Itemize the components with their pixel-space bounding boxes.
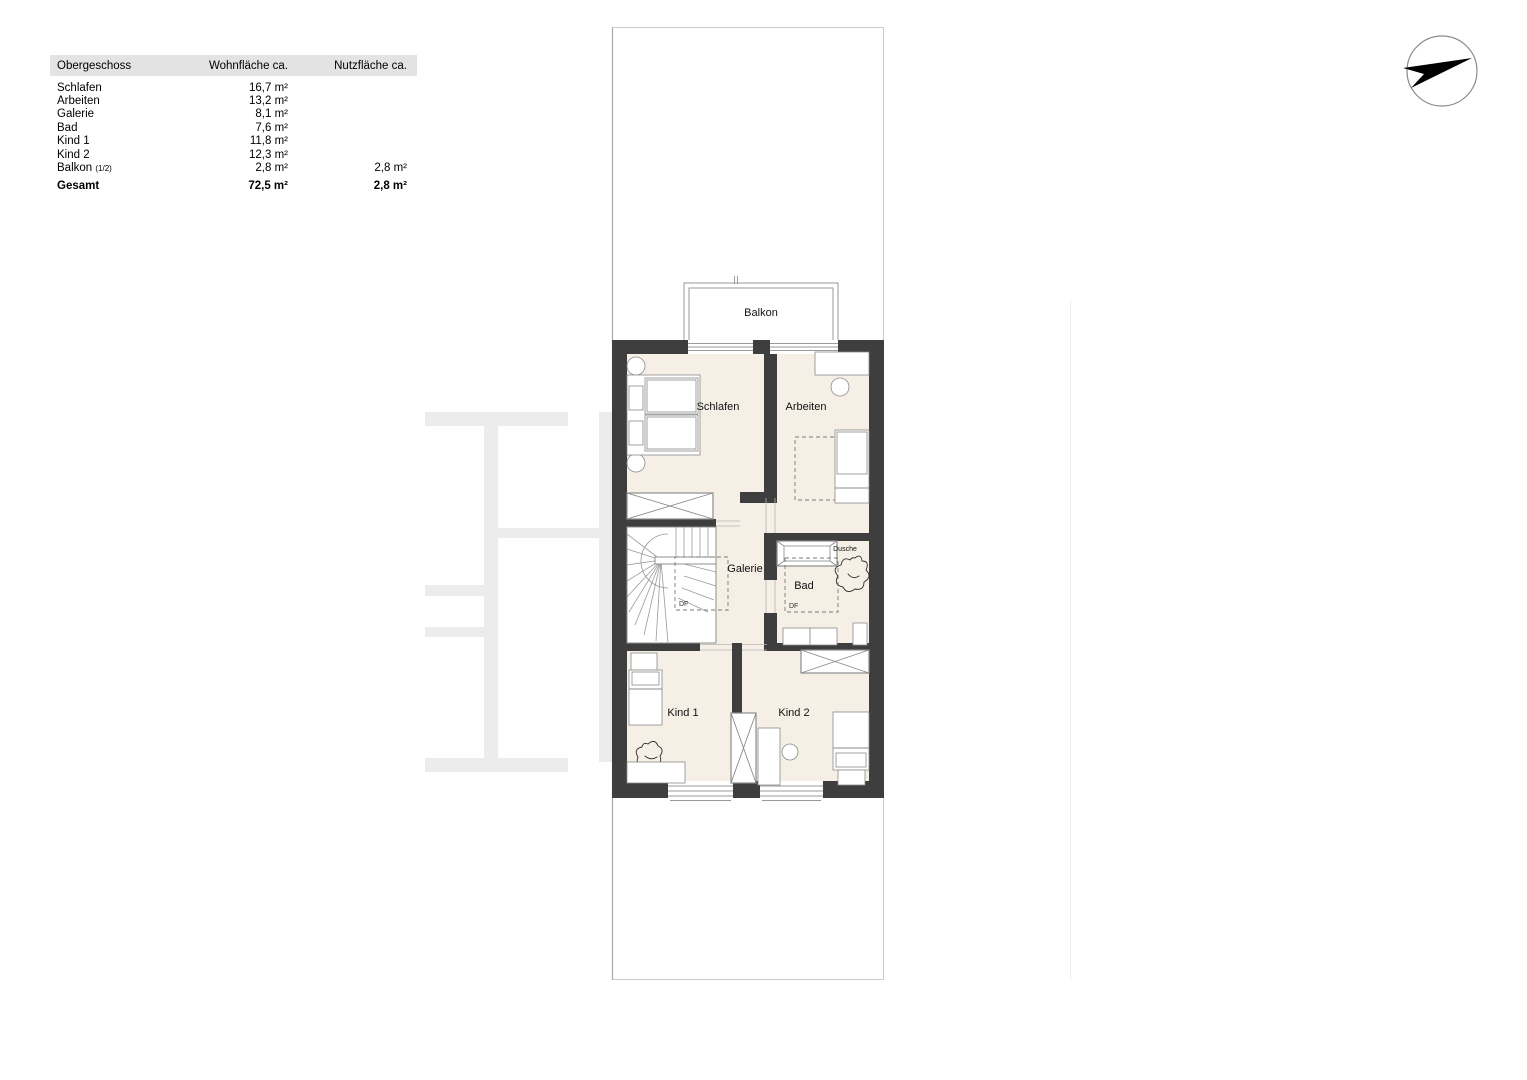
- table-row: Arbeiten 13,2 m²: [50, 94, 417, 107]
- header-living-area: Wohnfläche ca.: [200, 60, 288, 72]
- main-unit-plan: [612, 276, 884, 801]
- floorplan-sheet: Balkon: [0, 0, 1527, 1080]
- header-floor: Obergeschoss: [50, 60, 200, 72]
- table-row: Schlafen 16,7 m²: [50, 81, 417, 94]
- area-table: Obergeschoss Wohnfläche ca. Nutzfläche c…: [50, 55, 417, 193]
- area-table-header: Obergeschoss Wohnfläche ca. Nutzfläche c…: [50, 55, 417, 76]
- table-row: Bad 7,6 m²: [50, 121, 417, 134]
- table-row: Balkon (1/2) 2,8 m² 2,8 m²: [50, 161, 417, 174]
- table-row: Galerie 8,1 m²: [50, 108, 417, 121]
- header-usable-area: Nutzfläche ca.: [288, 60, 417, 72]
- north-arrow-icon: [1403, 36, 1477, 106]
- table-row: Kind 2 12,3 m²: [50, 148, 417, 161]
- neighbour-unit-right: [884, 276, 1156, 801]
- neighbour-unit-left: [425, 412, 612, 772]
- balkon-fraction: (1/2): [95, 164, 111, 173]
- table-row: Kind 1 11,8 m²: [50, 135, 417, 148]
- table-total-row: Gesamt 72,5 m² 2,8 m²: [50, 179, 417, 193]
